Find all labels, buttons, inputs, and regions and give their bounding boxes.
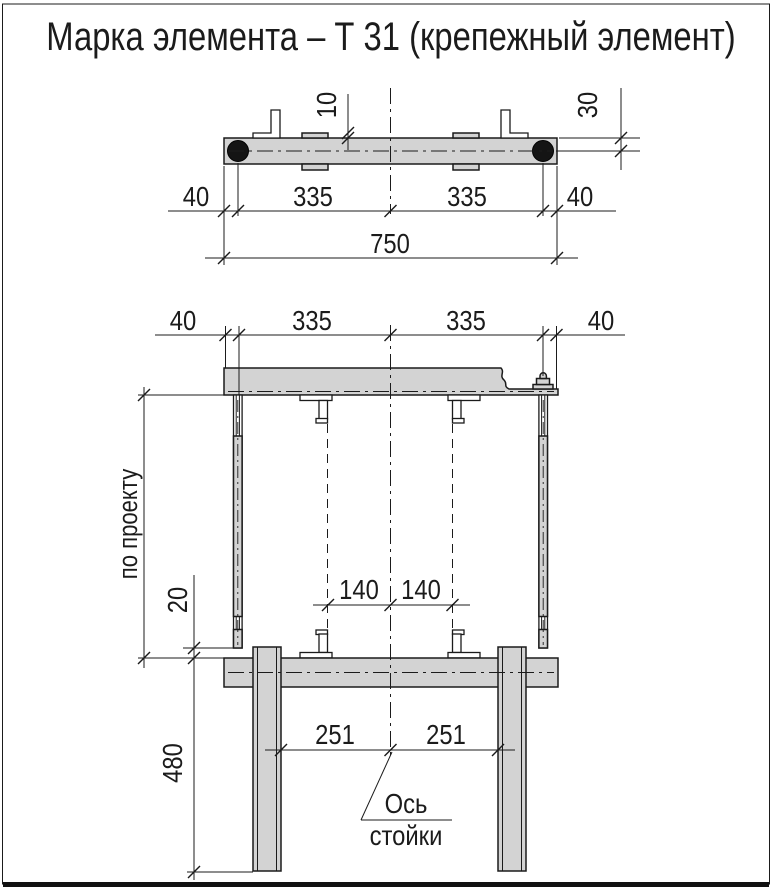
leader-label-stoyki: стойки xyxy=(370,819,443,851)
sheet-frame xyxy=(3,4,770,885)
leader-label-os: Ось xyxy=(385,787,428,819)
dim-10: 10 xyxy=(310,92,342,118)
dim-251-right: 251 xyxy=(426,718,466,750)
front-view-dim-lines xyxy=(138,326,625,880)
dim-335-left: 335 xyxy=(293,180,333,212)
dim-251-left: 251 xyxy=(315,718,355,750)
dim-140-left: 140 xyxy=(339,573,379,605)
dim-335-right: 335 xyxy=(447,180,487,212)
engineering-drawing: Марка элемента – Т 31 (крепежный элемент… xyxy=(0,0,772,890)
drawing-title: Марка элемента – Т 31 (крепежный элемент… xyxy=(46,14,735,59)
dim-40-right: 40 xyxy=(588,304,614,336)
top-view: 10 30 40 335 335 40 750 xyxy=(168,88,640,265)
angle-bracket-left xyxy=(253,110,280,138)
rod-right xyxy=(539,395,548,648)
dim-40-right: 40 xyxy=(567,180,593,212)
front-view: 40 335 335 40 140 140 251 251 по проекту… xyxy=(114,304,625,880)
lower-cleat-left xyxy=(300,630,332,658)
dim-30: 30 xyxy=(571,92,603,118)
dim-335-right: 335 xyxy=(446,304,486,336)
dim-40-left: 40 xyxy=(183,180,209,212)
upper-cleat-right xyxy=(448,395,480,423)
dim-750: 750 xyxy=(370,227,410,259)
post-left xyxy=(253,647,281,871)
dim-po-proektu: по проекту xyxy=(114,469,143,579)
dim-335-left: 335 xyxy=(292,304,332,336)
upper-cleat-left xyxy=(300,395,332,423)
lower-cleat-right xyxy=(448,630,480,658)
rod-left xyxy=(234,395,243,648)
dim-40-left: 40 xyxy=(170,304,196,336)
post-right xyxy=(498,647,526,871)
top-view-dim-texts: 10 30 40 335 335 40 750 xyxy=(183,92,604,260)
dim-480: 480 xyxy=(156,743,188,783)
dim-20: 20 xyxy=(161,587,193,613)
angle-bracket-right xyxy=(501,110,528,138)
dim-140-right: 140 xyxy=(401,573,441,605)
title-text: Марка элемента – Т 31 (крепежный элемент… xyxy=(46,14,735,59)
